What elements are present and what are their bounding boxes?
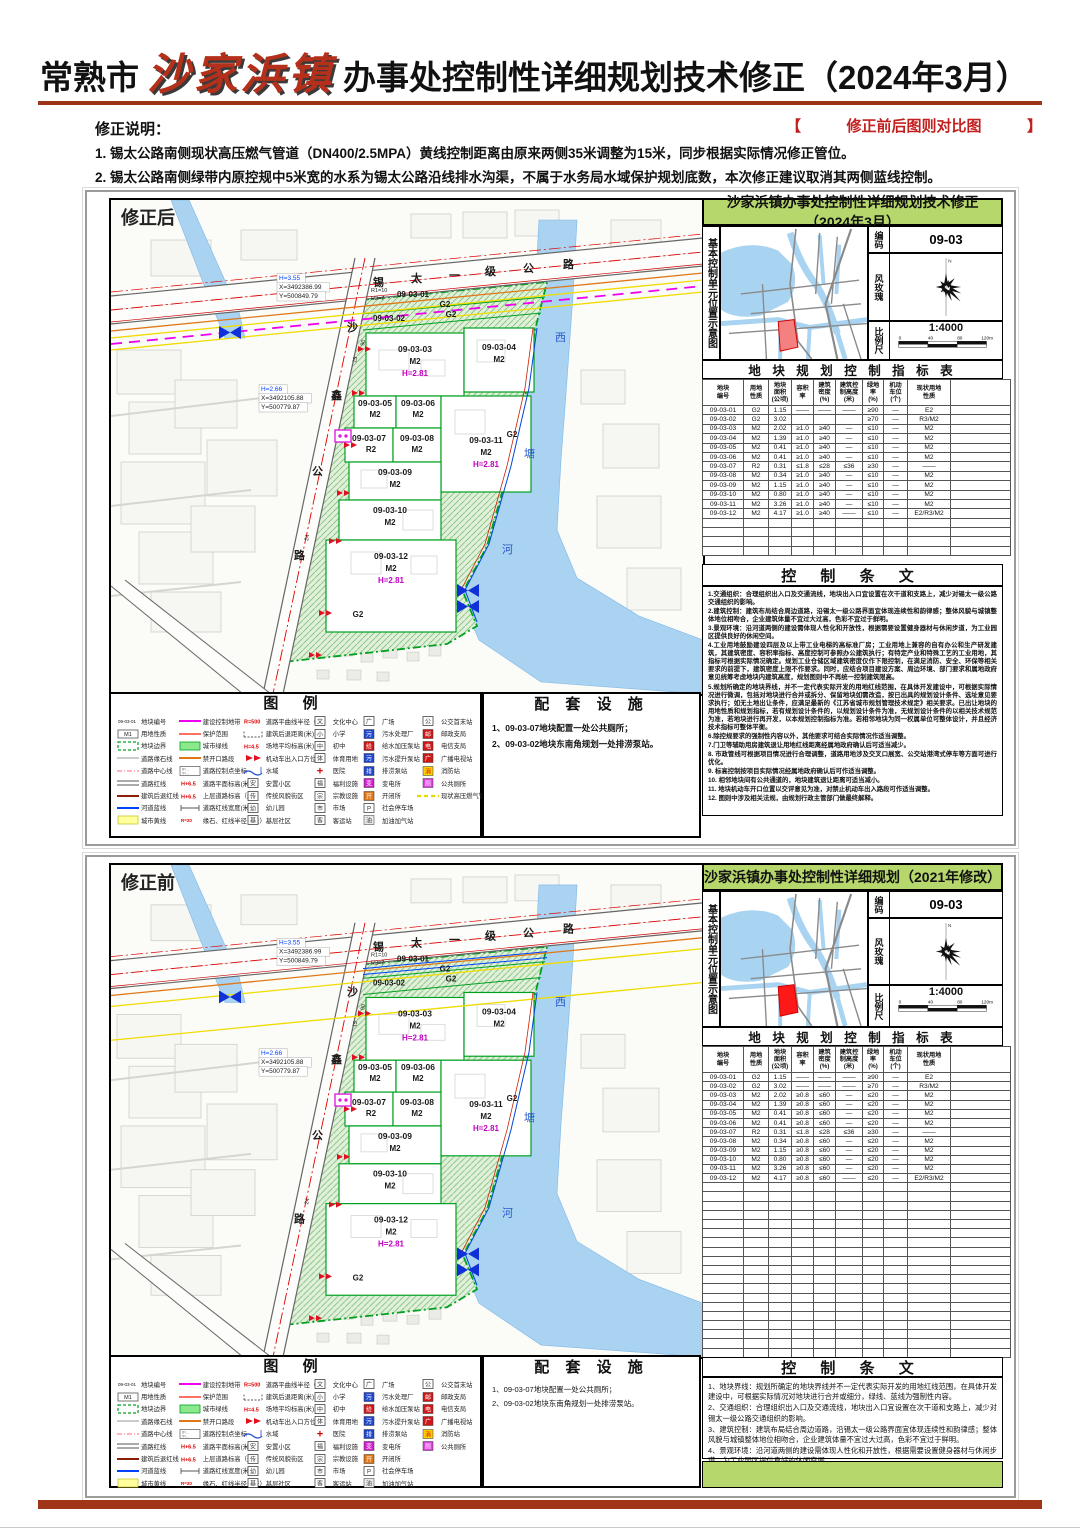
legend-item: 邮邮政支局 (417, 727, 481, 739)
table-row: 09-03-02G23.02——————≥70—R3/M2 (703, 1082, 1011, 1091)
svg-text:宗: 宗 (317, 1455, 323, 1463)
scale-value: 1:4000 (890, 322, 1002, 334)
provisions-title: 控 制 条 文 (702, 564, 1003, 586)
legend-item: 道路红线宽度(米) (179, 1465, 242, 1477)
legend-items: 09-03-01地块编号M1用地性质地块边界道路缘石线道路中心线道路红线建筑后退… (111, 1376, 480, 1490)
legend-item: R=500道路平曲线半径（米） (242, 1378, 309, 1390)
legend-item: 地块边界 (117, 740, 179, 752)
column-header: 地块编号 (703, 380, 744, 406)
legend-item: 基基层社区 (242, 814, 309, 826)
table-row-empty (703, 1275, 1011, 1284)
svg-text:油: 油 (366, 1480, 372, 1488)
table-row-empty (703, 1311, 1011, 1320)
scale-label: 比例尺 (869, 986, 890, 1026)
legend-item: 建筑后退距离(米) (242, 727, 309, 739)
legend-item: H+6.5道路平面标高(米) (179, 777, 242, 789)
scale-bar: 04080120m (890, 998, 1002, 1016)
windrose-row: 风玫瑰 N (868, 253, 1003, 321)
compare-label: 修正前后图则对比图 (846, 115, 981, 136)
svg-text:H=2.66: H=2.66 (261, 1050, 282, 1057)
text-item: 5.规划所确定的地块界线，并不一定代表实际开发的用地红线范围，在具体开发建设中，… (708, 684, 997, 732)
bottom-rule (38, 1500, 1042, 1509)
legend-item: 厕公共厕所 (417, 1440, 476, 1452)
svg-text:广: 广 (366, 718, 372, 726)
column-header: 地块编号 (703, 1047, 744, 1073)
text-item: 2、09-03-02地块东南角规划一处排涝泵站。 (492, 736, 691, 752)
legend-item: 幼幼儿园 (242, 802, 309, 814)
svg-text:R2: R2 (366, 1109, 377, 1118)
table-row: 09-03-06M20.41≥0.8≤60—≤20—M2 (703, 1118, 1011, 1127)
legend-title: 图 例 (111, 1357, 480, 1376)
svg-text:公: 公 (425, 719, 431, 726)
svg-text:宗: 宗 (317, 792, 323, 800)
svg-text:幼: 幼 (250, 1468, 256, 1476)
table-row: 09-03-09M21.15≥1.0≥40—≤10—M2 (703, 481, 1011, 490)
svg-text:H=4.5: H=4.5 (244, 744, 259, 750)
title-suffix: 办事处控制性详细规划技术修正（2024年3月） (343, 59, 1029, 96)
legend-item: 福福利设施 (309, 777, 358, 789)
svg-text:河: 河 (502, 543, 513, 556)
legend-item: 文文化中心 (309, 1378, 358, 1390)
legend-item: 变变电所 (358, 1440, 417, 1452)
text-item: 8. 市政管线可根据项目情况进行合理调整，道路用地涉及交叉口展宽、公交站港湾式停… (708, 751, 997, 767)
svg-text:M2: M2 (493, 355, 505, 364)
column-header: 建筑控制高度(米) (836, 380, 863, 406)
spec-table-before: 地块编号用地性质地块面积(公顷)容积率建筑密度(%)建筑控制高度(米)绿地率(%… (702, 1046, 1011, 1358)
panel-before: 锡太一级公路沙鑫公路西塘河H=3.55X=3492386.99Y=500849.… (85, 855, 1016, 1498)
svg-text:X=3492105.88: X=3492105.88 (261, 395, 304, 402)
table-row: 09-03-07R20.31≤1.8≤28≤36≥30——— (703, 462, 1011, 471)
column-header: 容积率 (792, 1047, 814, 1073)
svg-text:09-03-08: 09-03-08 (400, 1097, 434, 1107)
svg-text:幼: 幼 (250, 805, 256, 813)
column-header: 容积率 (792, 380, 814, 406)
legend-item: 道路红线宽度(米) (179, 802, 242, 814)
text-item: 2、09-03-02地块东南角规划一处排涝泵站。 (492, 1397, 691, 1411)
legend-item: 道路红线 (117, 1440, 179, 1452)
svg-text:09-03-09: 09-03-09 (378, 1131, 412, 1141)
text-item: 1、地块界线：规划所确定的地块界线并不一定代表实际开发的用地红线范围，在具体开发… (708, 1382, 997, 1402)
legend-item: 禁开口路段 (179, 752, 242, 764)
svg-text:邮: 邮 (425, 730, 431, 738)
svg-text:河: 河 (502, 1207, 513, 1220)
table-row: 09-03-12M24.17≥1.0≥40——≤10—E2/R3/M2 (703, 509, 1011, 518)
text-item: 2.建筑控制：建筑布局结合周边道路，沿锡太一级公路界面宜体现连续性和韵律感；整体… (708, 608, 997, 624)
legend-item: 市市场 (309, 802, 358, 814)
note-2: 2. 锡太公路南侧绿带内原控规中5米宽的水系为锡太公路沿线排水沟渠，不属于水务局… (95, 166, 1045, 186)
legend-items: 09-03-01地块编号M1用地性质地块边界道路缘石线道路中心线道路红线建筑后退… (111, 713, 480, 827)
svg-text:09-03-04: 09-03-04 (482, 1006, 516, 1016)
svg-text:市: 市 (317, 1468, 323, 1476)
panel-header-before: 沙家浜镇办事处控制性详细规划（2021年修改） (702, 863, 1003, 891)
svg-text:修正后: 修正后 (120, 207, 175, 228)
svg-text:污: 污 (366, 1418, 372, 1426)
svg-text:R=500: R=500 (244, 1383, 260, 1389)
table-row-empty (703, 1238, 1011, 1247)
column-header (951, 380, 1011, 406)
svg-text:M2: M2 (385, 1228, 397, 1237)
legend-item: P社会停车场 (358, 802, 417, 814)
legend-item: 小小学 (309, 1390, 358, 1402)
legend-item: 宗宗教设施 (309, 789, 358, 801)
legend-item: 广广播电视站 (417, 752, 481, 764)
svg-text:09-03-01: 09-03-01 (118, 719, 137, 724)
legend-item: 开开闭所 (358, 1452, 417, 1464)
svg-text:鑫: 鑫 (330, 388, 342, 402)
code-row: 编码 09-03 (868, 226, 1003, 253)
legend-item: 开开闭所 (358, 789, 417, 801)
text-item: 3.景观环境：沿河道两侧的建设需体现人性化和开放性，根据需要设置健身器材与休闲步… (708, 625, 997, 641)
svg-text:H+6.5: H+6.5 (181, 794, 196, 800)
legend-title: 图 例 (111, 694, 480, 713)
legend-item: R=500道路平曲线半径（米） (242, 715, 309, 727)
facilities-box-after: 配 套 设 施 1、09-03-07地块配置一处公共厕所；2、09-03-02地… (482, 692, 701, 838)
svg-text:太: 太 (410, 271, 423, 285)
legend-item: 机动车出入口方位 (242, 1415, 309, 1427)
provisions-title: 控 制 条 文 (702, 1357, 1003, 1377)
table-row-empty (703, 1302, 1011, 1311)
table-row: 09-03-01G21.15——————≥90—E2 (703, 406, 1011, 415)
svg-text:09-03-01: 09-03-01 (397, 290, 430, 299)
svg-text:路: 路 (294, 1212, 306, 1226)
table-row-empty (703, 518, 1011, 527)
legend-item: 中初中 (309, 740, 358, 752)
svg-text:公: 公 (425, 1382, 431, 1389)
table-row-empty (703, 528, 1011, 537)
legend-item: 消消防站 (417, 765, 481, 777)
legend-item: H+6.5上层道路标高（米） (179, 1452, 242, 1464)
svg-text:消: 消 (425, 1430, 431, 1438)
column-header: 地块面积(公顷) (769, 1047, 792, 1073)
legend-item: 公公交首末站 (417, 715, 481, 727)
svg-text:H=2.81: H=2.81 (473, 460, 500, 469)
svg-text:M2: M2 (389, 480, 401, 489)
svg-text:沙: 沙 (347, 985, 358, 998)
legend-item: 广广场 (358, 1378, 417, 1390)
svg-text:G2: G2 (353, 610, 364, 619)
text-item: 1、09-03-07地块配置一处公共厕所； (492, 720, 691, 736)
svg-text:M2: M2 (412, 1074, 424, 1083)
table-row: 09-03-06M20.41≥1.0≥40—≤10—M2 (703, 452, 1011, 461)
map-before: 锡太一级公路沙鑫公路西塘河H=3.55X=3492386.99Y=500849.… (109, 863, 705, 1359)
svg-text:福: 福 (317, 1443, 323, 1451)
svg-text:锡: 锡 (373, 275, 384, 289)
svg-text:修正前: 修正前 (120, 872, 175, 893)
table-row: 09-03-01G21.15——————≥90—E2 (703, 1073, 1011, 1082)
text-item: 7.门卫等辅助用房建筑退让用地红线距离经属地政府确认后可适当减少。 (708, 742, 997, 750)
svg-text:给: 给 (366, 743, 372, 751)
svg-text:安: 安 (250, 1443, 256, 1451)
table-row-empty (703, 537, 1011, 546)
svg-text:M2: M2 (411, 445, 423, 454)
svg-text:H=2.81: H=2.81 (378, 576, 405, 585)
svg-text:太: 太 (410, 936, 423, 950)
table-row-empty (703, 1210, 1011, 1219)
column-header: 现状用地性质 (908, 380, 951, 406)
svg-text:传: 传 (250, 792, 256, 800)
unit-code: 09-03 (890, 227, 1002, 252)
compare-caption: 【 修正前后图则对比图 】 (786, 115, 1042, 136)
legend-item: 建筑后退距离(米) (242, 1390, 309, 1402)
column-header: 建筑密度(%) (814, 1047, 836, 1073)
svg-text:污: 污 (366, 755, 372, 763)
provisions-text-before: 1、地块界线：规划所确定的地块界线并不一定代表实际开发的用地红线范围，在具体开发… (702, 1377, 1003, 1459)
svg-text:M2: M2 (480, 448, 492, 457)
legend-item: 城市绿线 (179, 1403, 242, 1415)
legend-item: 污污水处理厂 (358, 727, 417, 739)
svg-text:公: 公 (312, 465, 323, 478)
svg-text:中: 中 (317, 743, 323, 751)
table-row: 09-03-09M21.15≥0.8≤60—≤20—M2 (703, 1146, 1011, 1155)
svg-text:级: 级 (484, 264, 497, 278)
svg-text:H=2.81: H=2.81 (402, 369, 429, 378)
column-header: 建筑控制高度(米) (836, 1047, 863, 1073)
plan-sheet: 常熟市沙家浜镇办事处控制性详细规划技术修正（2024年3月） 修正说明： 【 修… (0, 0, 1080, 1528)
legend-item: 邮邮政支局 (417, 1390, 476, 1402)
facilities-box-before: 配 套 设 施 1、09-03-07地块配置一处公共厕所；2、09-03-02地… (482, 1355, 701, 1488)
svg-text:塘: 塘 (524, 1110, 535, 1124)
svg-text:09-03-09: 09-03-09 (378, 467, 412, 477)
table-row: 09-03-11M23.26≥0.8≤60—≤20—M2 (703, 1164, 1011, 1173)
svg-text:M2: M2 (369, 1074, 381, 1083)
svg-text:基: 基 (250, 1480, 256, 1488)
svg-text:H=3.55: H=3.55 (279, 275, 301, 282)
title-highlight: 沙家浜镇 (147, 51, 335, 99)
table-row-empty (703, 1265, 1011, 1274)
svg-text:M2: M2 (384, 518, 396, 527)
svg-text:R2: R2 (366, 445, 377, 454)
legend-item: R=20缘石、红线半径（米） (179, 814, 242, 826)
svg-text:广: 广 (425, 755, 431, 763)
legend-item: 河道蓝线 (117, 802, 179, 814)
svg-text:厕: 厕 (425, 1444, 431, 1451)
svg-text:变: 变 (366, 1443, 372, 1451)
table-row-empty (703, 1293, 1011, 1302)
svg-text:文: 文 (317, 718, 323, 726)
legend-item: 保护范围 (179, 1390, 242, 1402)
svg-text:09-03-11: 09-03-11 (469, 1099, 503, 1109)
svg-text:+: + (317, 766, 323, 776)
svg-text:锡: 锡 (373, 940, 384, 954)
locator-map (720, 226, 868, 360)
bracket-open: 【 (786, 115, 801, 136)
svg-text:Y=500779.87: Y=500779.87 (261, 404, 300, 411)
table-row-empty (703, 1256, 1011, 1265)
table-row-empty (703, 1321, 1011, 1330)
legend-item: 机动车出入口方位 (242, 752, 309, 764)
table-row: 09-03-02G23.02≥70—R3/M2 (703, 415, 1011, 424)
svg-text:09-03-01: 09-03-01 (118, 1382, 137, 1387)
svg-text:09-03-05: 09-03-05 (358, 1062, 392, 1072)
svg-text:Y=…: Y=… (182, 771, 189, 775)
table-row: 09-03-04M21.39≥0.8≤60—≤20—M2 (703, 1100, 1011, 1109)
windrose-row: 风玫瑰 N (868, 918, 1003, 985)
svg-text:G2: G2 (440, 965, 451, 974)
svg-text:40: 40 (928, 1000, 934, 1006)
legend-item: R=20缘石、红线半径（米） (179, 1477, 242, 1489)
column-header: 机动车位(个) (884, 1047, 908, 1073)
unit-location-label: 基本控制单元位置示意图 (702, 226, 720, 360)
facilities-title: 配 套 设 施 (484, 1357, 699, 1377)
svg-text:09-03-07: 09-03-07 (352, 1097, 386, 1107)
svg-text:M2: M2 (493, 1019, 505, 1028)
legend-item: 客客运站 (309, 1477, 358, 1489)
svg-text:H=3.55: H=3.55 (279, 940, 300, 947)
table-row-empty (703, 1229, 1011, 1238)
column-header: 绿地率(%) (863, 380, 884, 406)
legend-item: 油加油加气站 (358, 1477, 417, 1489)
legend-item: 排排涝泵站 (358, 765, 417, 777)
svg-text:塘: 塘 (524, 446, 535, 460)
code-label: 编码 (869, 892, 890, 917)
spec-table-after: 地块编号用地性质地块面积(公顷)容积率建筑密度(%)建筑控制高度(米)绿地率(%… (702, 379, 1011, 556)
svg-text:H=4.5: H=4.5 (244, 1407, 259, 1413)
svg-text:G2: G2 (446, 975, 457, 984)
note-1: 1. 锡太公路南侧现状高压燃气管道（DN400/2.5MPA）黄线控制距离由原来… (95, 142, 1045, 162)
svg-text:沙: 沙 (347, 321, 358, 334)
table-row-empty (703, 1201, 1011, 1210)
legend-item: 污污水提升泵站 (358, 752, 417, 764)
svg-text:G2: G2 (446, 310, 457, 319)
green-footer-bar (702, 1461, 1003, 1488)
legend-item: 污污水提升泵站 (358, 1415, 417, 1427)
table-row: 09-03-03M22.02≥0.8≤60—≤20—M2 (703, 1091, 1011, 1100)
svg-text:0: 0 (899, 336, 902, 342)
legend-item: 油加油加气站 (358, 814, 417, 826)
legend-item: 09-03-01地块编号 (117, 1378, 179, 1390)
legend-box-before: 图 例 09-03-01地块编号M1用地性质地块边界道路缘石线道路中心线道路红线… (109, 1355, 482, 1488)
svg-text:09-03-04: 09-03-04 (482, 342, 516, 352)
svg-text:消: 消 (425, 767, 431, 775)
text-item: 11. 地块机动车开口位置以交评意见为准，对禁止机动车出入路段可作适当调整。 (708, 786, 997, 794)
legend-item: H+6.5上层道路标高（米） (179, 789, 242, 801)
svg-text:P: P (367, 1470, 371, 1476)
legend-item: 文文化中心 (309, 715, 358, 727)
legend-item: 道路缘石线 (117, 1415, 179, 1427)
svg-text:广: 广 (366, 1381, 372, 1389)
svg-text:09-03-06: 09-03-06 (401, 398, 435, 408)
table-row-empty (703, 1330, 1011, 1339)
legend-item: 体体育用地 (309, 1415, 358, 1427)
svg-text:电: 电 (425, 1406, 431, 1414)
svg-text:40: 40 (928, 336, 934, 342)
svg-text:体: 体 (317, 1418, 323, 1426)
windrose-label: 风玫瑰 (869, 254, 890, 320)
svg-text:路: 路 (294, 548, 306, 562)
column-header: 地块面积(公顷) (769, 380, 792, 406)
legend-item: H=4.5场地平均标高(米) (242, 740, 309, 752)
svg-text:90: 90 (360, 339, 367, 346)
svg-text:体: 体 (317, 755, 323, 763)
legend-item: 污污水处理厂 (358, 1390, 417, 1402)
svg-text:R2=7: R2=7 (371, 296, 384, 302)
svg-text:0: 0 (899, 1000, 902, 1006)
svg-text:R1=10: R1=10 (371, 953, 387, 959)
table-row: 09-03-11M23.26≥1.0≥40—≤10—M2 (703, 499, 1011, 508)
svg-text:西: 西 (555, 996, 566, 1008)
legend-item: 河道蓝线 (117, 1465, 179, 1477)
svg-text:24: 24 (304, 1198, 311, 1205)
svg-text:24: 24 (304, 534, 311, 541)
text-item: 1.交通组织：合理组织出入口及交通流线，地块出入口宜设置在次干道和支路上，减少对… (708, 591, 997, 607)
legend-item: 广广场 (358, 715, 417, 727)
column-header: 用地性质 (744, 1047, 769, 1073)
legend-item: 传传统风貌街区 (242, 1452, 309, 1464)
legend-item: H=4.5场地平均标高(米) (242, 1403, 309, 1415)
legend-item: 建筑后退红线 (117, 1452, 179, 1464)
svg-text:客: 客 (317, 1480, 323, 1488)
code-label: 编码 (869, 227, 890, 252)
legend-item: 排排涝泵站 (358, 1428, 417, 1440)
legend-item: 变变电所 (358, 777, 417, 789)
svg-text:油: 油 (366, 817, 372, 825)
svg-text:G2: G2 (507, 430, 518, 439)
legend-item: X=…Y=…道路控制点坐标 (179, 1428, 242, 1440)
svg-text:Y=…: Y=… (182, 1434, 189, 1438)
svg-text:M1: M1 (124, 1395, 132, 1401)
table-row-empty (703, 1284, 1011, 1293)
legend-item: 09-03-01地块编号 (117, 715, 179, 727)
svg-text:H+6.5: H+6.5 (181, 1445, 196, 1451)
svg-text:M2: M2 (369, 410, 381, 419)
text-item: 12. 图则中涉及相关法规，由规划行政主管部门做最终解释。 (708, 795, 997, 803)
svg-text:电: 电 (425, 743, 431, 751)
svg-text:09-03-01: 09-03-01 (397, 955, 430, 964)
svg-text:X=3492386.99: X=3492386.99 (279, 949, 322, 956)
table-row: 09-03-05M20.41≥0.8≤60—≤20—M2 (703, 1109, 1011, 1118)
svg-text:09-03-07: 09-03-07 (352, 433, 386, 443)
map-after: 锡太一级公路沙鑫公路西塘河H=3.55X=3492386.99Y=500849.… (109, 198, 705, 696)
table-row-empty (703, 1348, 1011, 1357)
svg-text:中: 中 (317, 1406, 323, 1414)
legend-item: 宗宗教设施 (309, 1452, 358, 1464)
legend-item: P社会停车场 (358, 1465, 417, 1477)
table-row: 09-03-12M24.17≥0.8≤60——≤20—E2/R3/M2 (703, 1174, 1011, 1183)
svg-text:09-03-03: 09-03-03 (398, 344, 432, 354)
code-row: 编码 09-03 (868, 891, 1003, 918)
legend-item: 基基层社区 (242, 1477, 309, 1489)
svg-text:基: 基 (250, 817, 256, 825)
svg-text:120m: 120m (981, 336, 993, 342)
page-title: 常熟市沙家浜镇办事处控制性详细规划技术修正（2024年3月） (40, 40, 1050, 102)
scale-value: 1:4000 (890, 986, 1002, 998)
table-title: 地 块 规 划 控 制 指 标 表 (702, 360, 1003, 379)
svg-text:H=2.66: H=2.66 (261, 386, 283, 393)
svg-text:公: 公 (523, 927, 534, 940)
title-prefix: 常熟市 (40, 59, 139, 96)
legend-item: 水域 (242, 765, 309, 777)
table-row: 09-03-04M21.39≥1.0≥40—≤10—M2 (703, 434, 1011, 443)
text-item: 6.除控规要求的强制性内容以外，其他要求可结合实际情况作适当调整。 (708, 733, 997, 741)
locator-map (720, 891, 868, 1027)
legend-item: 建设控制地带 (179, 1378, 242, 1390)
svg-text:R1=10: R1=10 (371, 288, 387, 294)
svg-text:+: + (317, 1429, 323, 1439)
svg-text:广: 广 (425, 1418, 431, 1426)
facilities-items: 1、09-03-07地块配置一处公共厕所；2、09-03-02地块东南角规划一处… (484, 714, 699, 758)
svg-text:09-03-10: 09-03-10 (373, 1169, 407, 1179)
table-row-empty (703, 546, 1011, 555)
svg-text:排: 排 (366, 1430, 372, 1438)
legend-item: 体体育用地 (309, 752, 358, 764)
svg-text:鑫: 鑫 (330, 1052, 342, 1066)
panel-after: 锡太一级公路沙鑫公路西塘河H=3.55X=3492386.99Y=500849.… (85, 190, 1016, 846)
legend-item: 建设控制地带 (179, 715, 242, 727)
svg-text:安: 安 (250, 780, 256, 788)
table-row-empty (703, 1192, 1011, 1201)
table-row: 09-03-08M20.34≥0.8≤60—≤20—M2 (703, 1137, 1011, 1146)
column-header: 用地性质 (744, 380, 769, 406)
